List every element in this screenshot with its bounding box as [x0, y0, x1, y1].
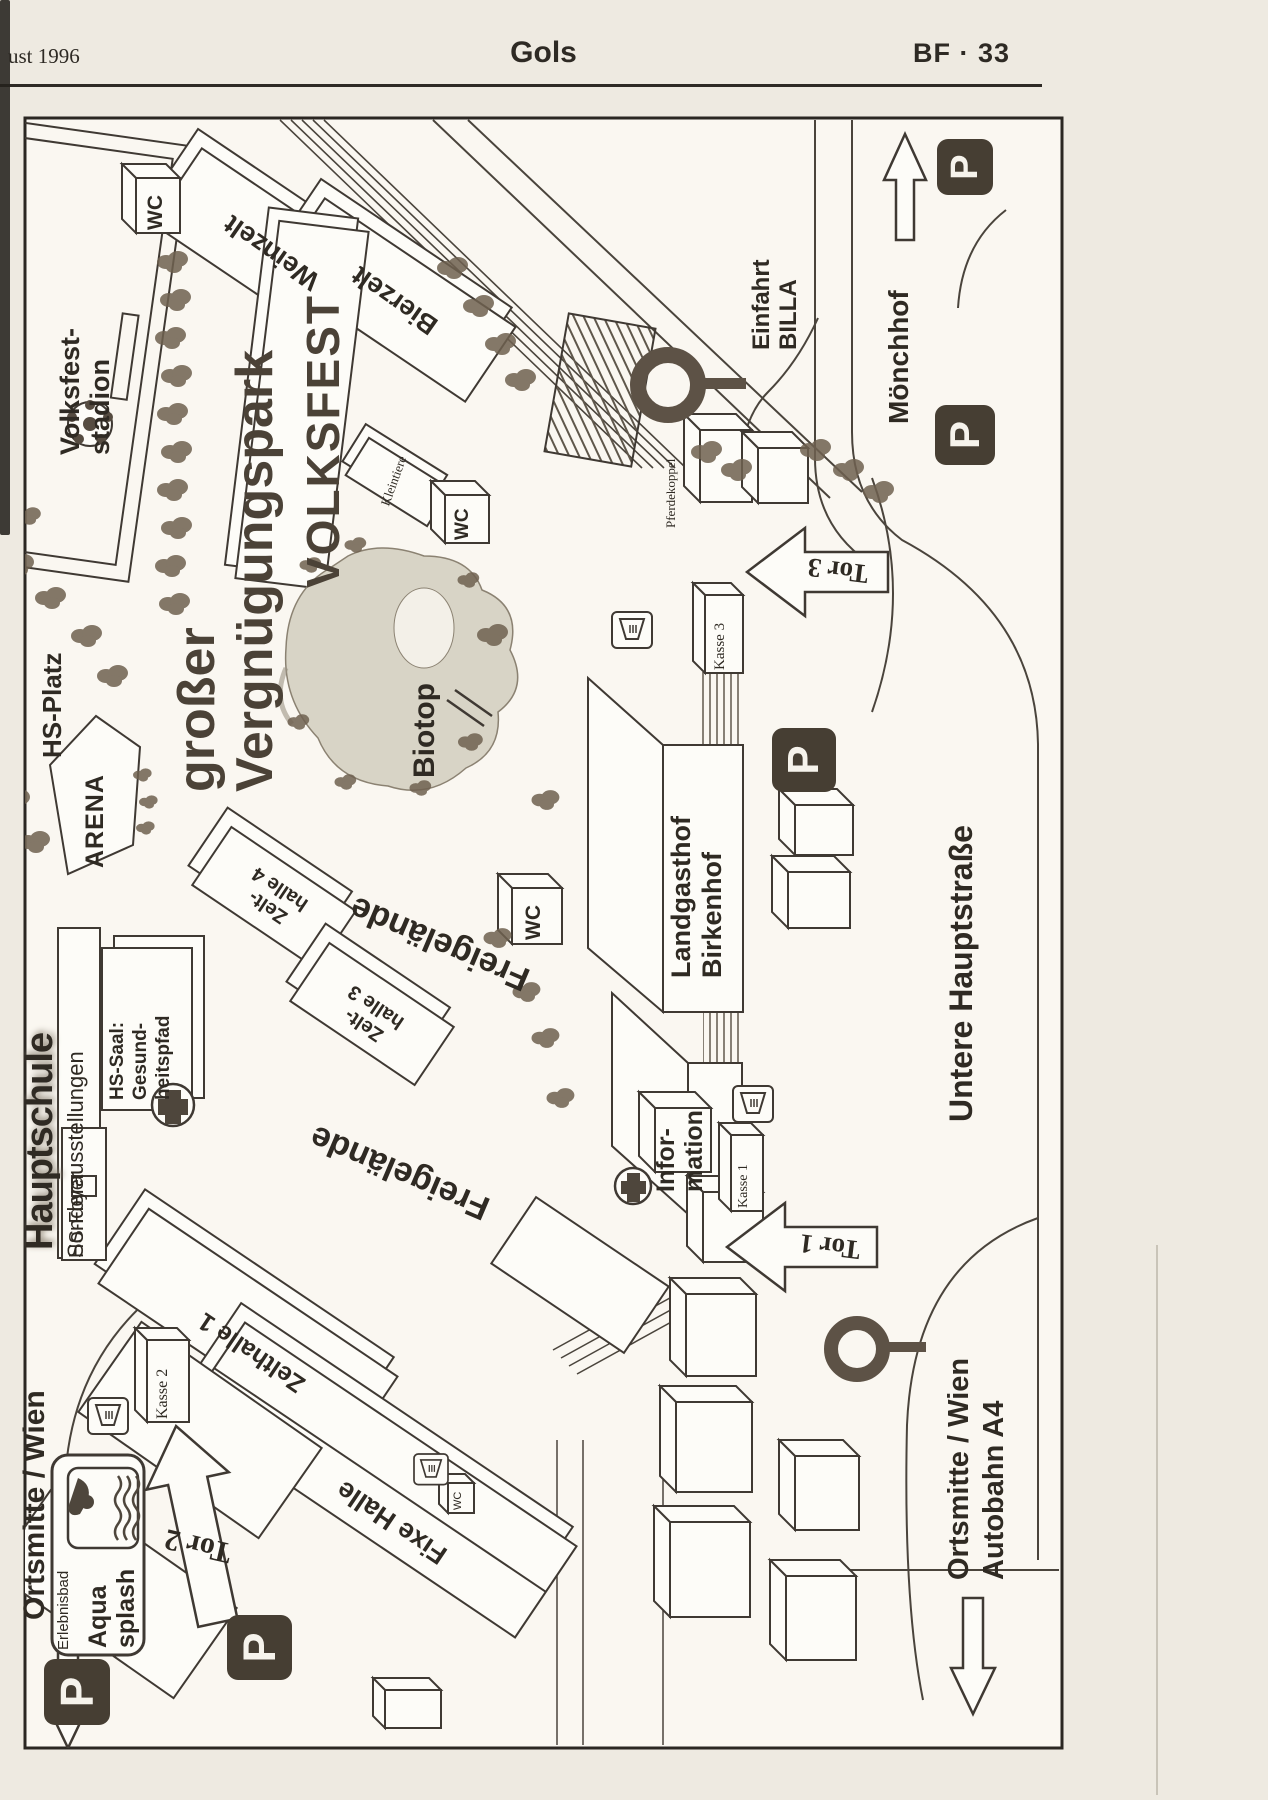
- label-volksfeststadion: Volksfest- stadion: [55, 328, 115, 455]
- parking-sign-moenchhof-1: P: [938, 140, 992, 194]
- label-hauptschule: Hauptschule: [20, 1033, 62, 1250]
- label-wc-1: WC: [144, 195, 167, 230]
- kiosk-icon-kasse2: [88, 1398, 128, 1434]
- label-tor1: Tor 1: [798, 1228, 862, 1265]
- label-information: Infor- mation: [652, 1110, 708, 1192]
- label-wc-2: WC: [453, 508, 474, 540]
- label-hs-saal: HS-Saal: Gesund- heitspfad: [106, 1016, 175, 1100]
- label-biotop: Biotop: [408, 683, 441, 778]
- parking-sign-southwest: P: [45, 1660, 109, 1724]
- label-hs-platz: HS-Platz: [38, 653, 67, 758]
- label-vergnuegungspark: großer Vergnügungspark: [168, 350, 284, 792]
- scan-edge: [0, 0, 10, 535]
- label-wc-4: WC: [452, 1492, 464, 1510]
- parking-sign-hauptstrasse: P: [773, 729, 835, 791]
- label-kasse3: Kasse 3: [712, 623, 729, 670]
- label-kasse1: Kasse 1: [736, 1164, 751, 1208]
- parking-sign-south: P: [228, 1616, 291, 1679]
- queue-stripes-kasse1: [703, 1008, 739, 1064]
- label-tor3: Tor 3: [806, 552, 870, 589]
- label-ortsmitte-autobahn: Ortsmitte / Wien Autobahn A4: [942, 1358, 1012, 1580]
- label-hs-foyer: HS-Foyer: [66, 1172, 88, 1258]
- label-moenchhof: Mönchhof: [884, 290, 915, 424]
- label-erlebnisbad: Erlebnisbad: [56, 1571, 73, 1650]
- label-arena: ARENA: [82, 774, 110, 868]
- scanned-page: ust 1996 Gols BF · 33: [0, 0, 1268, 1800]
- label-kasse2: Kasse 2: [154, 1369, 172, 1419]
- kiosk-icon-kasse1: [733, 1086, 773, 1122]
- kiosk-icon-kasse3: [612, 612, 652, 648]
- label-aqua-splash: Aqua splash: [84, 1569, 140, 1648]
- label-volksfest: VOLKSFEST: [298, 294, 349, 588]
- label-ortsmitte-wien: Ortsmitte / Wien: [18, 1390, 51, 1620]
- label-wc-3: WC: [522, 905, 545, 940]
- label-untere-hauptstrasse: Untere Hauptstraße: [944, 825, 979, 1122]
- label-einfahrt-billa: Einfahrt BILLA: [748, 259, 802, 350]
- parking-sign-moenchhof-2: P: [936, 406, 994, 464]
- kiosk-icon-fixehalle: [414, 1454, 448, 1485]
- label-landgasthof: Landgasthof Birkenhof: [666, 816, 728, 978]
- label-pferdekoppel: Pferdekoppel: [664, 459, 678, 528]
